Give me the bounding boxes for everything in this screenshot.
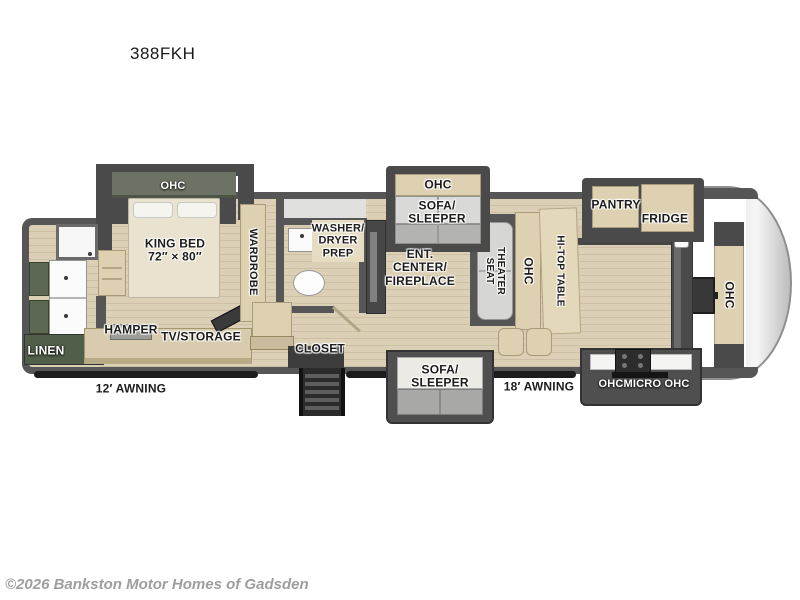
bedroom-slide-left-wall [96, 164, 112, 252]
awning-18-label: 18′ AWNING [504, 380, 574, 393]
model-title: 388FKH [130, 44, 195, 64]
front-cabinet-cap-top [714, 222, 744, 246]
living-ohc-label: OHC [521, 257, 534, 284]
entry-steps [299, 368, 345, 416]
washer-dryer-label: WASHER/ DRYER PREP [312, 223, 365, 260]
hitop-table-label: HI-TOP TABLE [554, 235, 565, 306]
copyright: ©2026 Bankston Motor Homes of Gadsden [5, 576, 309, 593]
front-cabinet-cap-bottom [714, 344, 744, 368]
vanity-cabinet-lower [29, 300, 49, 334]
pantry-label: PANTRY [591, 198, 640, 211]
sofa-top-label: SOFA/ SLEEPER [408, 200, 465, 227]
bedroom-ohc-label: OHC [160, 180, 185, 192]
linen-label: LINEN [28, 344, 65, 357]
wardrobe-label: WARDROBE [247, 229, 259, 296]
sofa-bottom-seat-divider [439, 390, 441, 414]
theater-seat-label: THEATER SEAT [484, 247, 506, 295]
king-bed-label: KING BED 72″ × 80″ [145, 238, 205, 265]
hitop-stool-left [498, 328, 524, 356]
kitchen-counter-right-face [674, 231, 681, 351]
tv-mount [713, 292, 718, 299]
stove [615, 349, 651, 373]
pillow-right [177, 202, 217, 218]
hamper-label: HAMPER [104, 323, 157, 336]
floorplan-canvas: 388FKH [0, 0, 800, 600]
sofa-bottom-label: SOFA/ SLEEPER [411, 364, 468, 391]
midbath-faucet [300, 234, 304, 238]
front-ohc-label: OHC [722, 281, 735, 308]
sink-divider [50, 297, 86, 299]
tv-front [691, 277, 715, 314]
tv-storage-label: TV/STORAGE [161, 330, 241, 343]
awning-12-label: 12′ AWNING [96, 382, 166, 395]
fridge-label: FRIDGE [642, 212, 689, 225]
vanity-cabinet-upper [29, 262, 49, 296]
ent-center-label: ENT. CENTER/ FIREPLACE [385, 248, 455, 288]
hitop-stool-right [526, 328, 552, 356]
pillow-left [133, 202, 173, 218]
midbath-wall-left [276, 199, 284, 311]
faucet-top [64, 276, 68, 280]
nightstand-left [112, 198, 128, 224]
shower-drain [88, 252, 92, 256]
nightstand-right [220, 198, 236, 224]
closet-label: CLOSET [295, 342, 345, 355]
toilet [293, 270, 325, 296]
kitchen-ohc-micro-label: OHCMICRO OHC [598, 378, 689, 390]
fireplace-insert [370, 232, 377, 302]
awning-bar-12ft [34, 371, 258, 378]
bedroom-door-lines [102, 258, 122, 288]
faucet-bottom [64, 314, 68, 318]
sofa-top-ohc-label: OHC [424, 178, 451, 191]
